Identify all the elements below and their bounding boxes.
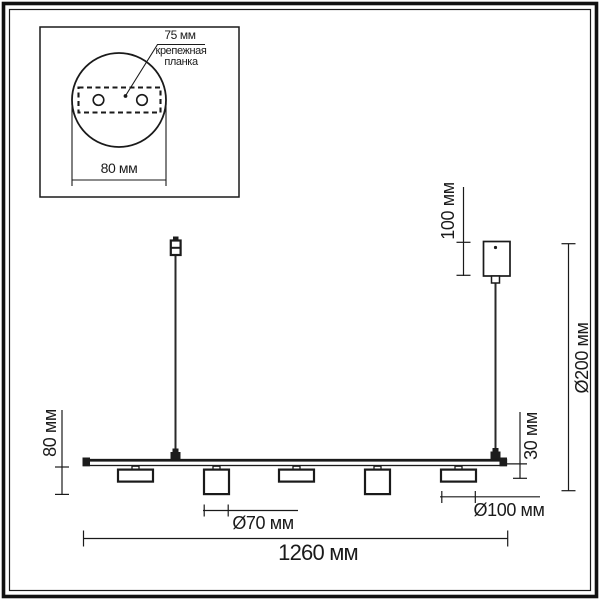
cable-right-bottom-fitting [491, 452, 501, 460]
spot-diameter-label: Ø70 мм [228, 513, 298, 533]
puck-light-5 [441, 470, 476, 482]
spot-light-4 [365, 470, 390, 495]
cable-left-bottom-fitting [171, 452, 181, 460]
puck-height-label: 30 мм [521, 406, 541, 466]
dimension-drawing: 75 мм крепежная планка 80 мм 100 мм Ø200… [0, 0, 600, 600]
bar-length-label: 1260 мм [272, 542, 364, 564]
inset-plate-label: крепежная планка [149, 46, 213, 68]
bar-end-cap-left [83, 458, 91, 467]
spot-light-2 [204, 470, 229, 495]
inset-hole-spacing-label: 75 мм [156, 29, 204, 41]
puck-diameter-label: Ø100 мм [469, 500, 549, 520]
puck-light-1 [118, 470, 153, 482]
canopy-screw-dot [494, 246, 497, 249]
inset-canopy-width-label: 80 мм [92, 161, 146, 175]
inset-plate-label-line2: планка [149, 57, 213, 68]
bar-end-cap-right [500, 458, 508, 467]
spot-drop-label: 80 мм [40, 403, 60, 463]
canopy-height-label: 100 мм [438, 176, 458, 246]
canopy-cable-gripper [492, 276, 500, 283]
puck-light-3 [279, 470, 314, 482]
overall-height-label: Ø200 мм [572, 313, 592, 403]
